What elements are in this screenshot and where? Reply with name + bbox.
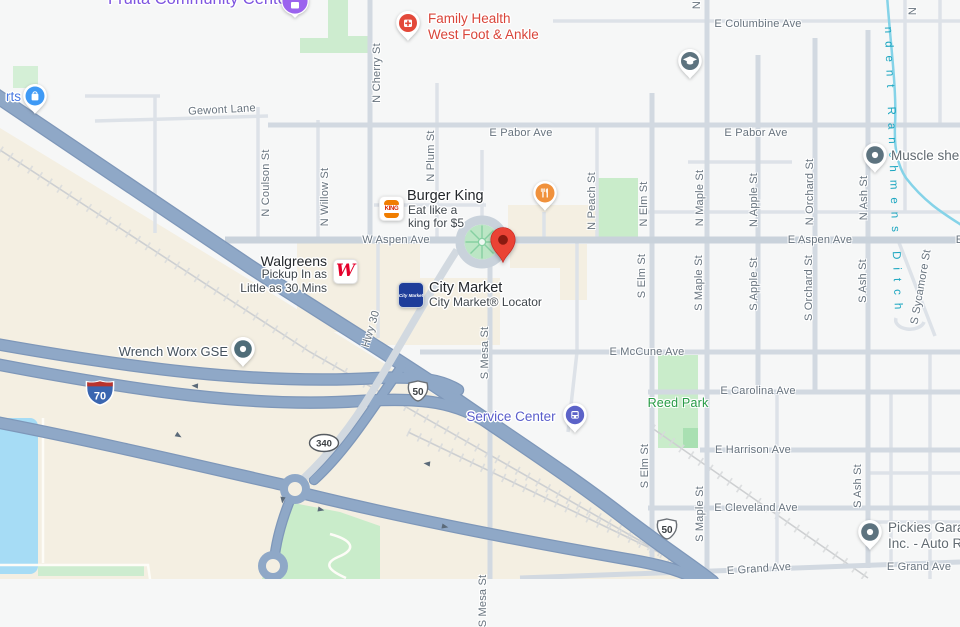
- poi-burger-king-title[interactable]: Burger King: [407, 188, 484, 204]
- street-label: S Mesa St: [477, 575, 489, 627]
- poi-fruita-community-center[interactable]: Fruita Community Center: [108, 0, 292, 9]
- walgreens-w-icon: W: [336, 263, 355, 280]
- poi-family-health[interactable]: Family Health West Foot & Ankle: [428, 11, 539, 42]
- co-340-shield: 340: [308, 433, 340, 458]
- bk-promo-line2: king for $5: [408, 217, 464, 230]
- poi-city-market-sub[interactable]: City Market® Locator: [429, 296, 542, 309]
- pickies-pin-icon[interactable]: [857, 519, 883, 556]
- us-50-shield: 50: [406, 380, 430, 407]
- poi-parts[interactable]: rts: [0, 89, 21, 104]
- poi-walgreens-promo[interactable]: Pickup In as Little as 30 Mins: [160, 268, 327, 295]
- svg-text:50: 50: [412, 387, 424, 398]
- interstate-70-shield: 70: [85, 380, 115, 411]
- svg-text:70: 70: [94, 391, 106, 403]
- walgreens-promo-line1: Pickup In as: [160, 268, 327, 282]
- map-canvas[interactable]: N Coulson StN Willow StN Cherry StN Plum…: [0, 0, 960, 579]
- destination-pin[interactable]: [489, 226, 517, 269]
- bk-bun-top-icon: [384, 200, 399, 205]
- poi-family-health-line2: West Foot & Ankle: [428, 27, 539, 43]
- restaurant-pin-icon[interactable]: [532, 180, 558, 217]
- community-center-pin-icon[interactable]: [281, 0, 309, 26]
- poi-service-center[interactable]: Service Center: [452, 409, 570, 424]
- burger-king-logo-icon[interactable]: KING: [379, 196, 404, 221]
- poi-city-market-title[interactable]: City Market: [429, 280, 502, 296]
- wrench-worx-pin-icon[interactable]: [230, 336, 256, 373]
- city-market-logo-word: City Market: [399, 293, 423, 298]
- city-market-logo-icon[interactable]: City Market: [398, 282, 424, 308]
- poi-family-health-line1: Family Health: [428, 11, 539, 27]
- bk-logo-word: KING: [385, 206, 399, 212]
- muscle-pin-icon[interactable]: [862, 142, 888, 179]
- pickies-line1: Pickies Gara: [888, 520, 960, 536]
- hospital-pin-icon[interactable]: [395, 10, 421, 47]
- us-50-shield-south: 50: [655, 518, 679, 545]
- svg-text:340: 340: [316, 439, 332, 450]
- bk-bun-bottom-icon: [384, 213, 399, 218]
- shopping-pin-icon[interactable]: [22, 83, 48, 120]
- transit-pin-icon[interactable]: [562, 402, 588, 439]
- svg-text:50: 50: [661, 525, 673, 536]
- walgreens-promo-line2: Little as 30 Mins: [160, 282, 327, 296]
- school-pin-icon[interactable]: [677, 48, 703, 85]
- pickies-line2: Inc. - Auto R: [888, 536, 960, 552]
- poi-muscle[interactable]: Muscle she: [891, 148, 959, 164]
- google-maps-screenshot: { "map": { "colors": { "destination_pin"…: [0, 0, 960, 579]
- poi-burger-king-promo[interactable]: Eat like a king for $5: [408, 204, 464, 230]
- poi-wrench-worx[interactable]: Wrench Worx GSE: [100, 344, 228, 359]
- poi-pickies[interactable]: Pickies Gara Inc. - Auto R: [888, 520, 960, 551]
- walgreens-logo-icon[interactable]: W: [333, 259, 358, 284]
